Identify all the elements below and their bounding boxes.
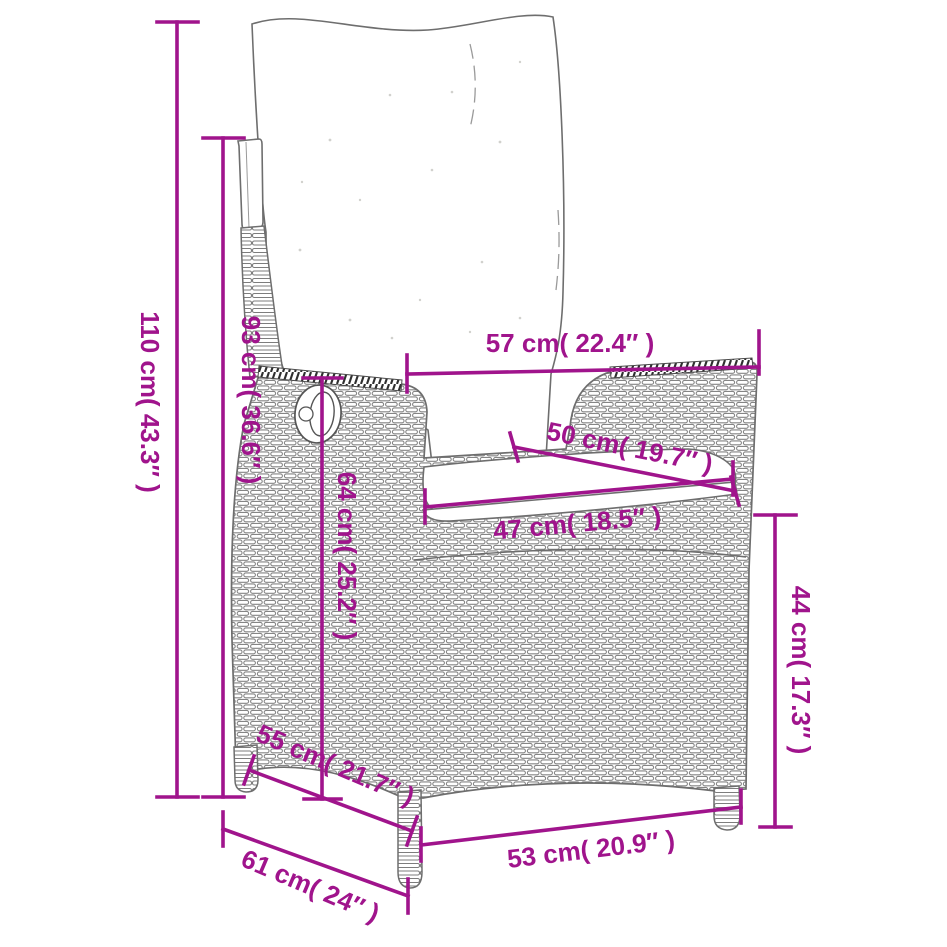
frame-post-cap xyxy=(238,139,263,230)
dim-total-depth: 61 cm( 24″ ) xyxy=(223,812,408,928)
leg-rear-left xyxy=(234,745,258,792)
dim-total-height-label: 110 cm( 43.3″ ) xyxy=(135,311,165,493)
dim-total-depth-label: 61 cm( 24″ ) xyxy=(237,843,384,928)
dim-front-width: 53 cm( 20.9″ ) xyxy=(421,790,741,874)
dim-total-height: 110 cm( 43.3″ ) xyxy=(135,22,198,797)
dimension-diagram: 110 cm( 43.3″ ) 93 cm( 36.6″ ) 57 cm( 22… xyxy=(0,0,947,947)
dim-seat-height: 44 cm( 17.3″ ) xyxy=(755,515,816,827)
dim-backrest-height-label: 93 cm( 36.6″ ) xyxy=(236,316,266,485)
dim-armrest-height-label: 64 cm( 25.2″ ) xyxy=(332,472,362,641)
dim-top-width-label: 57 cm( 22.4″ ) xyxy=(486,328,655,358)
chair-diagram-svg: 110 cm( 43.3″ ) 93 cm( 36.6″ ) 57 cm( 22… xyxy=(0,0,947,947)
dim-seat-height-label: 44 cm( 17.3″ ) xyxy=(786,586,816,755)
